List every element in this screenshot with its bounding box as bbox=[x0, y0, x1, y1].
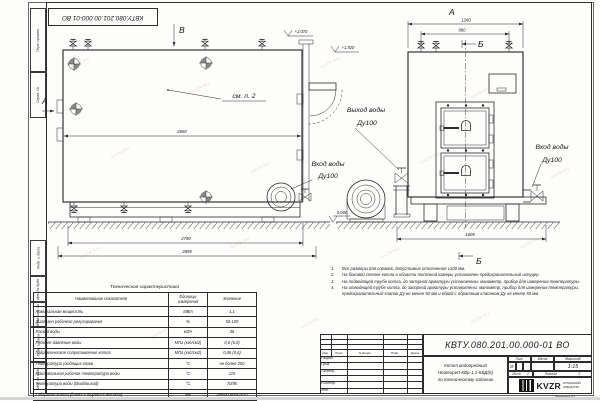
tb-sheet-label: Лист bbox=[512, 372, 521, 376]
tb-sheets-value: 2 bbox=[578, 372, 580, 376]
tech-cell: °С bbox=[169, 369, 208, 379]
tb-name-line1: Котел водогрейный bbox=[424, 363, 507, 370]
tb-header-dokum: N докум. bbox=[347, 349, 383, 356]
note-number: 1. bbox=[331, 266, 342, 272]
note-text: На отводящей трубе котла, до запорной ар… bbox=[342, 285, 591, 296]
tb-name-line3: по техническому заданию bbox=[424, 377, 507, 384]
tech-cell: Рабочее давление воды bbox=[34, 338, 169, 348]
tech-cell: °С bbox=[169, 379, 208, 389]
tech-cell: Диапазон рабочего регулирования bbox=[34, 317, 169, 327]
notes-list: 1.Все размеры для справок, допустимые от… bbox=[331, 266, 591, 297]
tech-table: Наименование показателя Единицыизмерения… bbox=[33, 292, 257, 401]
title-block: Изм. Лист N докум. Подп. Дата Разраб. Пр… bbox=[320, 334, 592, 394]
note-number: 3. bbox=[331, 279, 342, 285]
tech-cell: Максимальная рабочая температура воды bbox=[34, 369, 169, 379]
tb-doc-number: КВТУ.080.201.00.000-01 ВО bbox=[423, 334, 592, 356]
tech-cell: 0,6 (6,0) bbox=[208, 338, 257, 348]
tech-cell: Расход воды bbox=[34, 327, 169, 337]
tech-cell: Гидравлическое сопротивление котла bbox=[34, 348, 169, 358]
tech-cell: не более 250 bbox=[208, 358, 257, 368]
tb-sheets-label: Листов bbox=[545, 372, 557, 376]
kvzr-logo-text: KVZR bbox=[536, 381, 561, 391]
top-doc-number-text: КВТУ.080.201.00.000-01 ВО bbox=[62, 14, 143, 21]
table-row: Рабочее давление водыМПа (кгс/см2)0,6 (6… bbox=[34, 338, 257, 348]
kvzr-logo-icon bbox=[519, 379, 534, 392]
note-item: 4.На отводящей трубе котла, до запорной … bbox=[331, 285, 591, 296]
table-row: Номинальная мощностьМВт1,1 bbox=[34, 307, 257, 317]
tb-scale-value: 1:15 bbox=[554, 362, 592, 371]
tech-cell: % bbox=[169, 317, 208, 327]
tech-col-units: Единицыизмерения bbox=[169, 293, 208, 307]
tech-cell: МПа (кгс/см2) bbox=[169, 348, 208, 358]
tech-cell: 115 bbox=[208, 369, 257, 379]
tech-cell: 70/95 bbox=[208, 379, 257, 389]
table-row: Температура воды (Вход/выход)°С70/95 bbox=[34, 379, 257, 389]
note-item: 1.Все размеры для справок, допустимые от… bbox=[331, 266, 591, 272]
margin-label: Перв. примен. bbox=[36, 28, 40, 52]
tech-cell: 0,06 (0,6) bbox=[208, 348, 257, 358]
tech-cell: °С bbox=[169, 358, 208, 368]
table-row: Диапазон рабочего регулирования%50-100 bbox=[34, 317, 257, 327]
tb-header-list: Лист bbox=[331, 349, 347, 356]
tb-role-tkontr: Т.контр. bbox=[320, 369, 347, 375]
note-text: На боковой стенке котла в области топочн… bbox=[342, 272, 591, 278]
note-number: 4. bbox=[331, 285, 342, 296]
tech-cell: 38 bbox=[208, 327, 257, 337]
note-text: Все размеры для справок, допустимые откл… bbox=[342, 266, 591, 272]
margin-label: Подп. и дата bbox=[36, 247, 40, 270]
tech-cell: 1,1 bbox=[208, 307, 257, 317]
tech-cell: МВт bbox=[169, 307, 208, 317]
tb-lit-value: И bbox=[508, 362, 516, 371]
note-text: На подводящей трубе котла, до запорной а… bbox=[342, 279, 591, 285]
tech-col-name: Наименование показателя bbox=[34, 293, 169, 307]
tech-cell: 50-100 bbox=[208, 317, 257, 327]
margin-cell-podp-data-1: Подп. и дата bbox=[30, 240, 46, 276]
tech-col-value: Значение bbox=[208, 293, 257, 307]
tech-col-units-l2: измерения bbox=[178, 299, 199, 304]
table-row: Максимальная рабочая температура воды°С1… bbox=[34, 369, 257, 379]
margin-cell-sprav-n: Справ. № bbox=[30, 72, 46, 118]
kvzr-logo-sub2: ЗАВОД РЭП bbox=[563, 386, 581, 389]
tech-cell: МПа (кгс/см2) bbox=[169, 338, 208, 348]
table-row: Гидравлическое сопротивление котлаМПа (к… bbox=[34, 348, 257, 358]
tb-header-podp: Подп. bbox=[383, 349, 407, 356]
note-item: 3.На подводящей трубе котла, до запорной… bbox=[331, 279, 591, 285]
top-doc-number-stamp: КВТУ.080.201.00.000-01 ВО bbox=[48, 8, 158, 26]
table-row: Расход водым3/ч38 bbox=[34, 327, 257, 337]
note-item: 2.На боковой стенке котла в области топо… bbox=[331, 272, 591, 278]
note-number: 2. bbox=[331, 272, 342, 278]
table-row: Температура уходящих газов°Сне более 250 bbox=[34, 358, 257, 368]
tech-table-title: Техническая характеристика bbox=[33, 285, 256, 290]
tb-header-izm: Изм. bbox=[320, 349, 331, 356]
tb-sheet-value: 1 bbox=[527, 372, 529, 376]
tb-role-utv: Утв. bbox=[320, 388, 347, 394]
margin-cell-perv-primen: Перв. примен. bbox=[30, 8, 46, 72]
tb-header-data: Дата bbox=[407, 349, 423, 356]
tech-cell: Температура воды (Вход/выход) bbox=[34, 379, 169, 389]
tech-cell: Номинальная мощность bbox=[34, 307, 169, 317]
margin-label: Справ. № bbox=[36, 87, 40, 103]
tech-cell: Температура уходящих газов bbox=[34, 358, 169, 368]
tb-name-line2: Heatexpert-КВр-1,1-КБД(К) bbox=[424, 370, 507, 377]
tech-cell: м3/ч bbox=[169, 327, 208, 337]
